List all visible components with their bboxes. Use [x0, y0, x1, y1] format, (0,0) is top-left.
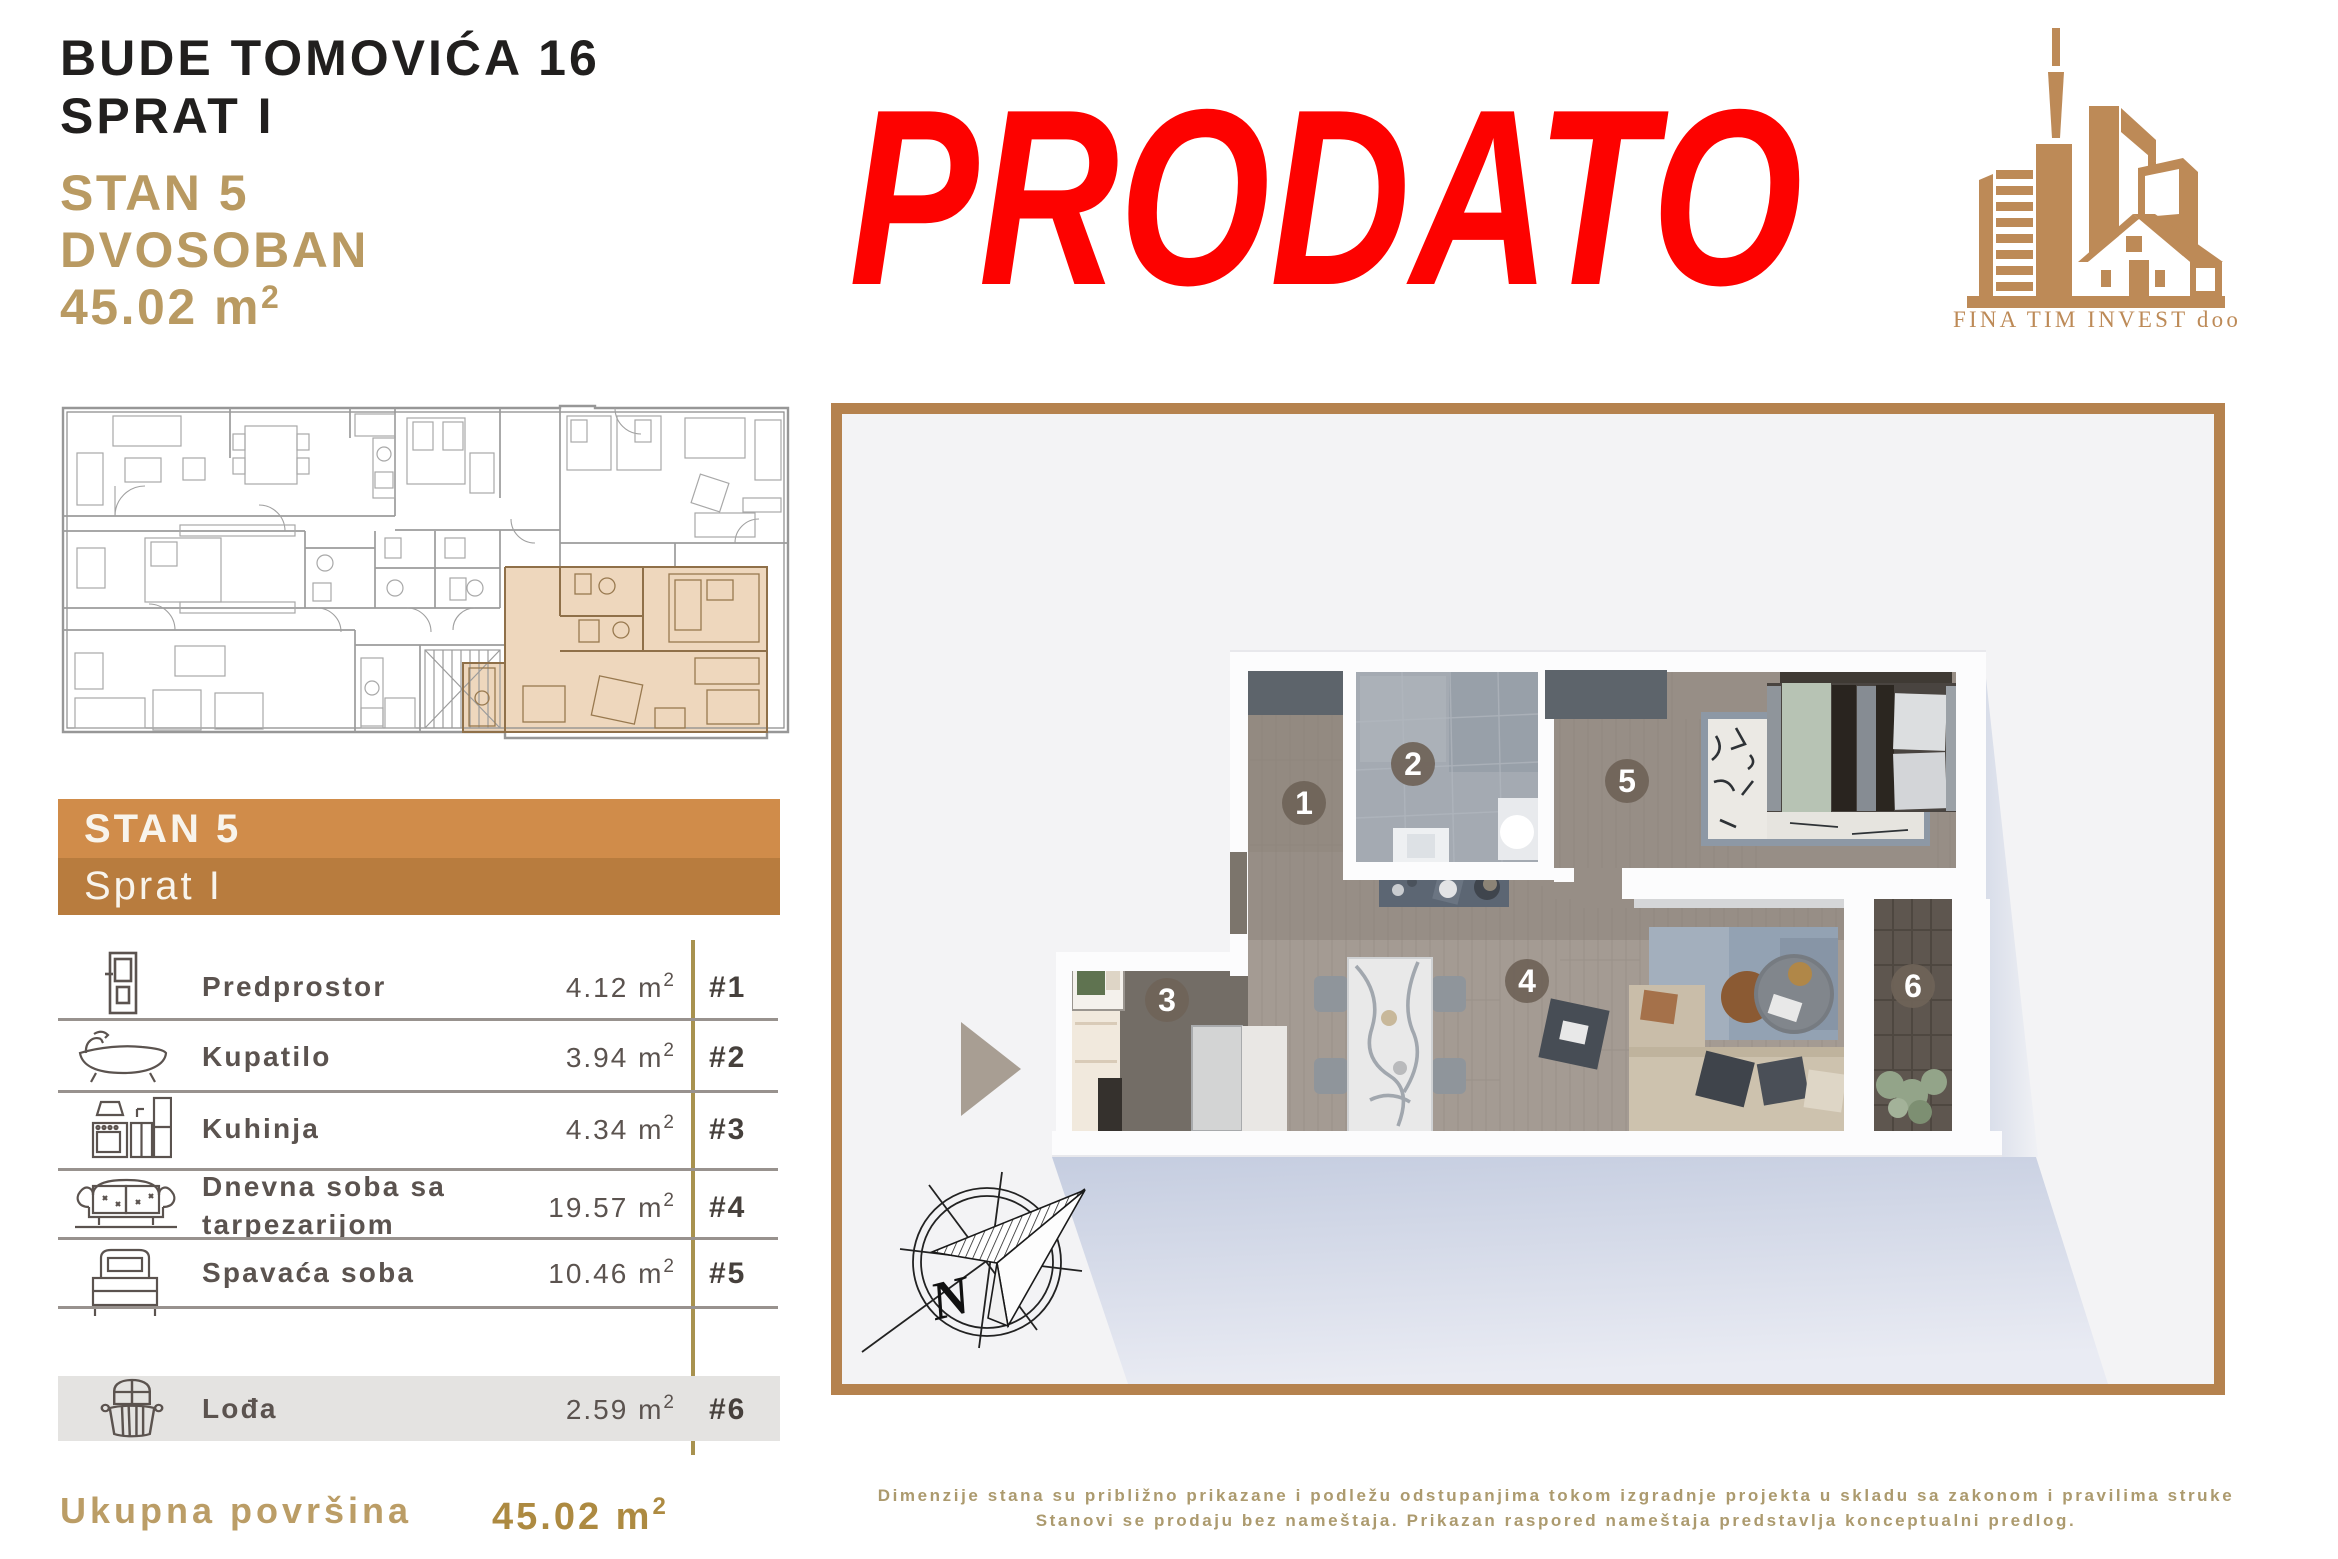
svg-text:FINA TIM INVEST doo: FINA TIM INVEST doo	[1953, 307, 2241, 332]
svg-text:5: 5	[1618, 763, 1636, 799]
svg-text:4: 4	[1518, 963, 1536, 999]
svg-text:1: 1	[1295, 785, 1313, 821]
svg-text:6: 6	[1904, 968, 1922, 1004]
svg-text:2: 2	[1404, 746, 1422, 782]
svg-text:3: 3	[1158, 982, 1176, 1018]
